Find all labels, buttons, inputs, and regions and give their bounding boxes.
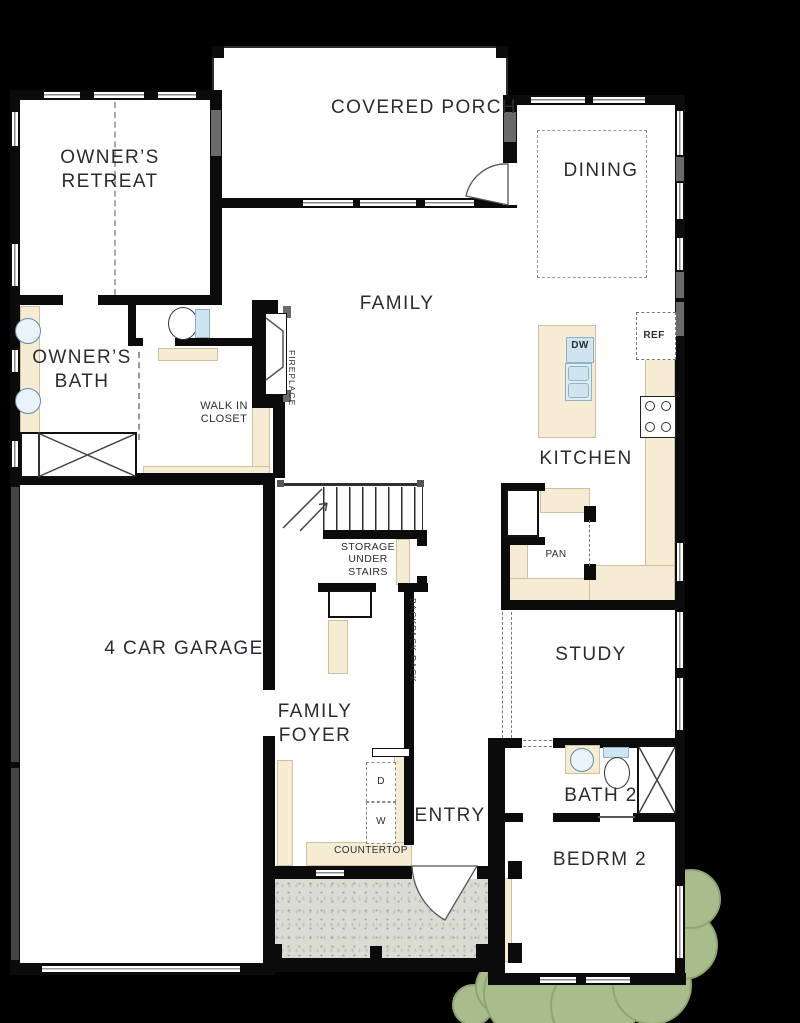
ceiling-break-line — [114, 102, 116, 295]
window — [675, 543, 685, 581]
label-dining: DINING — [531, 159, 671, 183]
study-opening-line — [511, 612, 512, 738]
window — [675, 238, 685, 270]
label-study: STUDY — [531, 643, 651, 667]
window — [10, 244, 20, 286]
label-bath2: BATH 2 — [551, 784, 651, 808]
window — [675, 183, 685, 219]
study-opening-line — [502, 612, 503, 738]
wall — [553, 813, 600, 822]
wall-jamb — [211, 110, 221, 156]
burner — [661, 422, 671, 432]
label-family: FAMILY — [337, 292, 457, 316]
door-opening — [503, 163, 517, 205]
wall-jamb — [11, 768, 19, 960]
window — [586, 975, 630, 985]
window — [316, 868, 344, 878]
covered-porch-floor — [212, 46, 508, 204]
stair-rail — [280, 483, 422, 486]
window — [44, 90, 80, 100]
label-dryer: D — [366, 776, 396, 788]
window — [360, 198, 416, 208]
sink — [570, 748, 594, 772]
door-leaf-line — [598, 816, 635, 818]
toilet-tank — [195, 309, 210, 338]
wall — [10, 295, 222, 305]
sink — [15, 318, 41, 344]
label-walk-in-closet: WALK IN CLOSET — [174, 400, 274, 426]
laundry-shelf — [372, 748, 410, 757]
label-washer: W — [366, 816, 396, 828]
label-garage: 4 CAR GARAGE — [84, 637, 284, 661]
wall — [488, 738, 505, 985]
window — [158, 90, 196, 100]
island-sink-basin — [568, 366, 589, 381]
foyer-bench — [277, 760, 293, 866]
label-pantry: PAN — [536, 549, 576, 561]
burner — [661, 401, 671, 411]
label-kitchen: KITCHEN — [521, 447, 651, 471]
stair-newel — [277, 480, 284, 487]
wall-jamb — [11, 487, 19, 762]
kitchen-counter-bottom — [588, 565, 675, 602]
wall — [584, 506, 596, 522]
window — [675, 678, 685, 730]
label-dishwasher: DW — [566, 340, 594, 352]
cased-opening-line — [523, 746, 552, 747]
porch-post — [370, 946, 382, 958]
wall — [323, 530, 425, 539]
wall-jamb — [676, 272, 684, 298]
garage-door — [42, 964, 240, 974]
door-opening — [143, 338, 175, 346]
window — [675, 612, 685, 668]
shower-seat-divider — [38, 432, 40, 478]
label-owners-retreat: OWNER’S RETREAT — [10, 146, 210, 194]
window — [10, 350, 20, 372]
porch-post — [496, 46, 508, 58]
window — [94, 90, 144, 100]
closet-shelf-top — [158, 348, 218, 361]
wall — [675, 95, 685, 985]
window — [10, 441, 20, 467]
window — [425, 198, 474, 208]
label-backpack-rack: BACKPACK RACK — [405, 598, 418, 733]
pantry-cubby — [506, 489, 539, 537]
wall — [501, 537, 545, 545]
island-sink-basin — [568, 383, 589, 398]
wall — [501, 600, 677, 610]
cased-opening-line — [523, 740, 552, 741]
wall-jamb — [676, 302, 684, 336]
porch-post — [212, 46, 224, 58]
owners-retreat-floor — [10, 90, 222, 305]
label-owners-bath: OWNER’S BATH — [22, 346, 142, 394]
burner — [645, 422, 655, 432]
wall — [417, 530, 427, 546]
wall — [584, 564, 596, 580]
pantry-counter-top — [540, 488, 590, 513]
label-bedrm2: BEDRM 2 — [540, 848, 660, 872]
window — [10, 112, 20, 146]
toilet-bowl — [168, 307, 198, 340]
wall-jamb — [676, 157, 684, 181]
front-door-opening — [412, 866, 477, 879]
pantry-door-line — [589, 520, 590, 566]
fireplace-box — [265, 313, 287, 395]
stair-newel — [417, 480, 424, 487]
window — [540, 975, 576, 985]
window — [531, 95, 585, 105]
label-countertop: COUNTERTOP — [301, 845, 441, 857]
window — [675, 886, 685, 958]
floor-plan: COVERED PORCH OWNER’S RETREAT DINING FAM… — [0, 0, 800, 1023]
burner — [645, 401, 655, 411]
window — [303, 198, 353, 208]
door-opening — [63, 295, 98, 305]
stair-treads — [323, 487, 423, 530]
mud-cubby-shelf — [328, 620, 348, 674]
wall — [508, 943, 522, 963]
label-storage-under-stairs: STORAGE UNDER STAIRS — [318, 541, 418, 578]
window — [675, 111, 685, 155]
label-entry: ENTRY — [400, 804, 500, 828]
label-refrigerator: REF — [637, 330, 671, 342]
label-covered-porch: COVERED PORCH — [324, 96, 524, 120]
wall — [268, 958, 492, 972]
mud-bench — [328, 590, 372, 618]
label-fireplace: FIREPLACE — [285, 350, 297, 422]
fireplace-side — [252, 300, 278, 313]
window — [593, 95, 645, 105]
label-family-foyer: FAMILY FOYER — [255, 700, 375, 748]
pantry-counter-bottom — [508, 578, 590, 602]
fireplace-back — [252, 300, 265, 408]
wall — [508, 861, 522, 879]
dining-optional-outline — [537, 130, 647, 278]
